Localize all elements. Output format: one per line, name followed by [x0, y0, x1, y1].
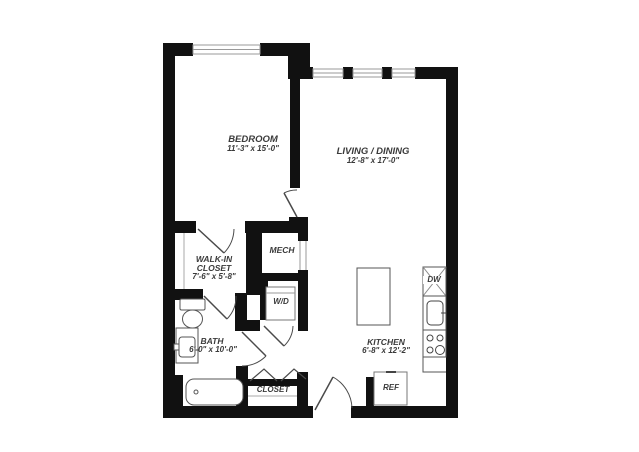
wall-bath-right-top: [235, 293, 247, 331]
wall-window-spacer-1: [343, 67, 353, 79]
wall-top-bedroom-left: [163, 43, 193, 56]
wd-door-leaf: [264, 326, 284, 346]
label-dw: DW: [423, 276, 445, 284]
toilet-fixture: [180, 299, 205, 328]
wall-bedroom-hall-left: [175, 221, 196, 233]
wall-bedroom-hall-right: [245, 221, 307, 233]
room-dims-living-dining: 12'-8" x 17'-0": [312, 157, 434, 165]
wall-bottom-left: [163, 406, 313, 418]
wall-left: [163, 43, 175, 418]
walkin-door-arc: [224, 229, 234, 253]
hall-door-arc: [242, 356, 266, 366]
wall-top-living-left: [300, 67, 313, 79]
wall-mech-wd-divider: [246, 273, 307, 281]
entry-door-leaf: [315, 377, 333, 410]
walkin-door-leaf: [198, 229, 224, 253]
wd-door-arc: [284, 326, 293, 346]
bedroom-door-leaf: [284, 193, 297, 217]
wall-mech-right-top: [298, 233, 308, 241]
room-dims-bath: 6'-0" x 10'-0": [173, 346, 253, 354]
wall-plumbing-mark: [193, 289, 202, 297]
wall-bedroom-living-divider: [290, 56, 300, 188]
walls: [163, 43, 458, 418]
entry-door-arc: [333, 377, 352, 408]
room-dims-bedroom: 11'-3" x 15'-0": [193, 145, 313, 153]
room-label-closet: CLOSET: [243, 386, 303, 394]
room-label-mech: MECH: [252, 246, 312, 255]
kitchen-island: [357, 268, 390, 325]
bedroom-door-arc: [284, 190, 297, 193]
wall-right: [446, 67, 458, 418]
wall-bottom-right: [351, 406, 458, 418]
bath-door-leaf: [204, 296, 227, 319]
room-dims-walkin: 7'-6" x 5'-8": [179, 273, 249, 281]
wall-ref-stub: [366, 377, 374, 406]
label-ref: REF: [375, 384, 407, 392]
wall-tub-thickening: [175, 375, 183, 406]
floor-plan-drawing: [0, 0, 639, 452]
bathtub-fixture: [186, 379, 243, 405]
floor-plan: BEDROOM 11'-3" x 15'-0" LIVING / DINING …: [0, 0, 639, 452]
room-dims-kitchen: 6'-8" x 12'-2": [345, 347, 427, 355]
wall-window-spacer-2: [382, 67, 392, 79]
kitchen-sink-fixture: [423, 296, 446, 330]
room-label-wd: W/D: [251, 298, 311, 306]
bath-door-arc: [227, 296, 236, 319]
